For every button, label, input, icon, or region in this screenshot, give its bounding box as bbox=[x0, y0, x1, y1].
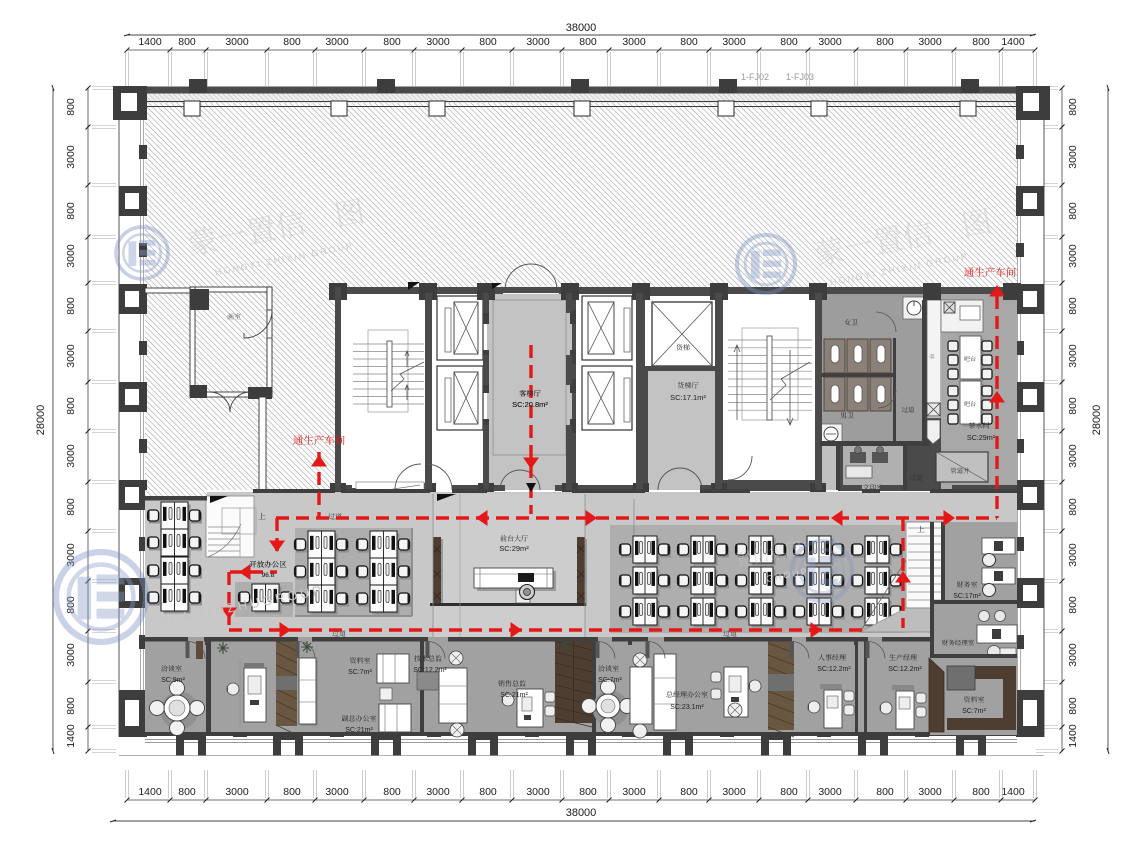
svg-text:800: 800 bbox=[1067, 297, 1079, 315]
svg-text:800: 800 bbox=[1067, 397, 1079, 415]
svg-text:3000: 3000 bbox=[65, 643, 77, 667]
svg-text:3000: 3000 bbox=[1067, 344, 1079, 368]
svg-text:SC:29m²: SC:29m² bbox=[967, 433, 996, 442]
svg-text:SC:9m²: SC:9m² bbox=[161, 677, 185, 684]
svg-text:3000: 3000 bbox=[65, 444, 77, 468]
svg-text:800: 800 bbox=[1067, 596, 1079, 614]
svg-text:3000: 3000 bbox=[1067, 643, 1079, 667]
svg-text:1400: 1400 bbox=[1067, 724, 1079, 748]
svg-text:3000: 3000 bbox=[65, 344, 77, 368]
svg-text:800: 800 bbox=[178, 36, 196, 48]
svg-text:3000: 3000 bbox=[1067, 244, 1079, 268]
svg-text:SC:12.2m²: SC:12.2m² bbox=[413, 667, 447, 674]
svg-text:28000: 28000 bbox=[35, 405, 47, 436]
svg-text:SC:17m²: SC:17m² bbox=[953, 593, 981, 600]
svg-text:3000: 3000 bbox=[526, 786, 550, 798]
svg-text:800: 800 bbox=[383, 36, 401, 48]
svg-text:SC:12.2m²: SC:12.2m² bbox=[888, 666, 922, 673]
svg-text:800: 800 bbox=[876, 786, 894, 798]
svg-text:800: 800 bbox=[65, 297, 77, 315]
svg-text:3000: 3000 bbox=[65, 145, 77, 169]
svg-text:800: 800 bbox=[680, 36, 698, 48]
svg-text:3000: 3000 bbox=[225, 786, 249, 798]
svg-text:800: 800 bbox=[1067, 697, 1079, 715]
svg-text:3000: 3000 bbox=[325, 36, 349, 48]
svg-text:3000: 3000 bbox=[225, 36, 249, 48]
svg-text:3000: 3000 bbox=[1067, 444, 1079, 468]
svg-text:800: 800 bbox=[65, 397, 77, 415]
svg-text:3000: 3000 bbox=[818, 36, 842, 48]
svg-text:800: 800 bbox=[972, 786, 990, 798]
svg-text:SC:7m²: SC:7m² bbox=[598, 677, 622, 684]
svg-text:3000: 3000 bbox=[65, 244, 77, 268]
svg-text:800: 800 bbox=[65, 202, 77, 220]
svg-text:3000: 3000 bbox=[722, 786, 746, 798]
svg-text:1400: 1400 bbox=[1001, 786, 1025, 798]
svg-text:1400: 1400 bbox=[1001, 36, 1025, 48]
svg-text:3000: 3000 bbox=[1067, 543, 1079, 567]
svg-text:3000: 3000 bbox=[722, 36, 746, 48]
svg-text:800: 800 bbox=[680, 786, 698, 798]
svg-text:3000: 3000 bbox=[1067, 145, 1079, 169]
svg-text:800: 800 bbox=[283, 36, 301, 48]
svg-text:3000: 3000 bbox=[918, 786, 942, 798]
svg-text:3000: 3000 bbox=[526, 36, 550, 48]
svg-text:1400: 1400 bbox=[138, 36, 162, 48]
svg-text:800: 800 bbox=[1067, 202, 1079, 220]
svg-text:3000: 3000 bbox=[426, 786, 450, 798]
svg-text:SC:7m²: SC:7m² bbox=[962, 708, 986, 715]
svg-text:SC:12.2m²: SC:12.2m² bbox=[817, 666, 851, 673]
svg-text:1-FJ02: 1-FJ02 bbox=[741, 72, 769, 82]
svg-text:800: 800 bbox=[479, 36, 497, 48]
svg-text:800: 800 bbox=[1067, 98, 1079, 116]
svg-text:800: 800 bbox=[283, 786, 301, 798]
svg-text:3000: 3000 bbox=[818, 786, 842, 798]
svg-text:800: 800 bbox=[579, 786, 597, 798]
svg-text:1-FJ03: 1-FJ03 bbox=[786, 72, 814, 82]
svg-text:800: 800 bbox=[780, 786, 798, 798]
svg-text:3000: 3000 bbox=[622, 36, 646, 48]
svg-text:3000: 3000 bbox=[325, 786, 349, 798]
svg-text:800: 800 bbox=[479, 786, 497, 798]
svg-text:800: 800 bbox=[65, 498, 77, 516]
svg-text:SC:17.1m²: SC:17.1m² bbox=[670, 393, 706, 402]
svg-text:3000: 3000 bbox=[918, 36, 942, 48]
svg-text:800: 800 bbox=[876, 36, 894, 48]
svg-text:SC:21m²: SC:21m² bbox=[500, 692, 528, 699]
svg-text:3000: 3000 bbox=[426, 36, 450, 48]
svg-text:800: 800 bbox=[579, 36, 597, 48]
svg-text:800: 800 bbox=[1067, 498, 1079, 516]
svg-text:SC:7m²: SC:7m² bbox=[348, 669, 372, 676]
svg-text:800: 800 bbox=[383, 786, 401, 798]
svg-text:1400: 1400 bbox=[138, 786, 162, 798]
svg-text:800: 800 bbox=[65, 98, 77, 116]
svg-text:SC:20.8m²: SC:20.8m² bbox=[512, 400, 548, 409]
svg-text:SC:29m²: SC:29m² bbox=[499, 544, 529, 553]
svg-text:3000: 3000 bbox=[622, 786, 646, 798]
svg-text:38000: 38000 bbox=[566, 22, 597, 34]
svg-text:800: 800 bbox=[780, 36, 798, 48]
svg-text:800: 800 bbox=[178, 786, 196, 798]
svg-text:96.8: 96.8 bbox=[262, 572, 275, 579]
svg-text:SC:21m²: SC:21m² bbox=[345, 727, 373, 734]
svg-text:38000: 38000 bbox=[566, 807, 597, 819]
svg-text:1400: 1400 bbox=[65, 724, 77, 748]
svg-text:800: 800 bbox=[65, 697, 77, 715]
svg-text:SC:23.1m²: SC:23.1m² bbox=[670, 704, 704, 711]
svg-text:28000: 28000 bbox=[1091, 405, 1103, 436]
svg-text:800: 800 bbox=[972, 36, 990, 48]
